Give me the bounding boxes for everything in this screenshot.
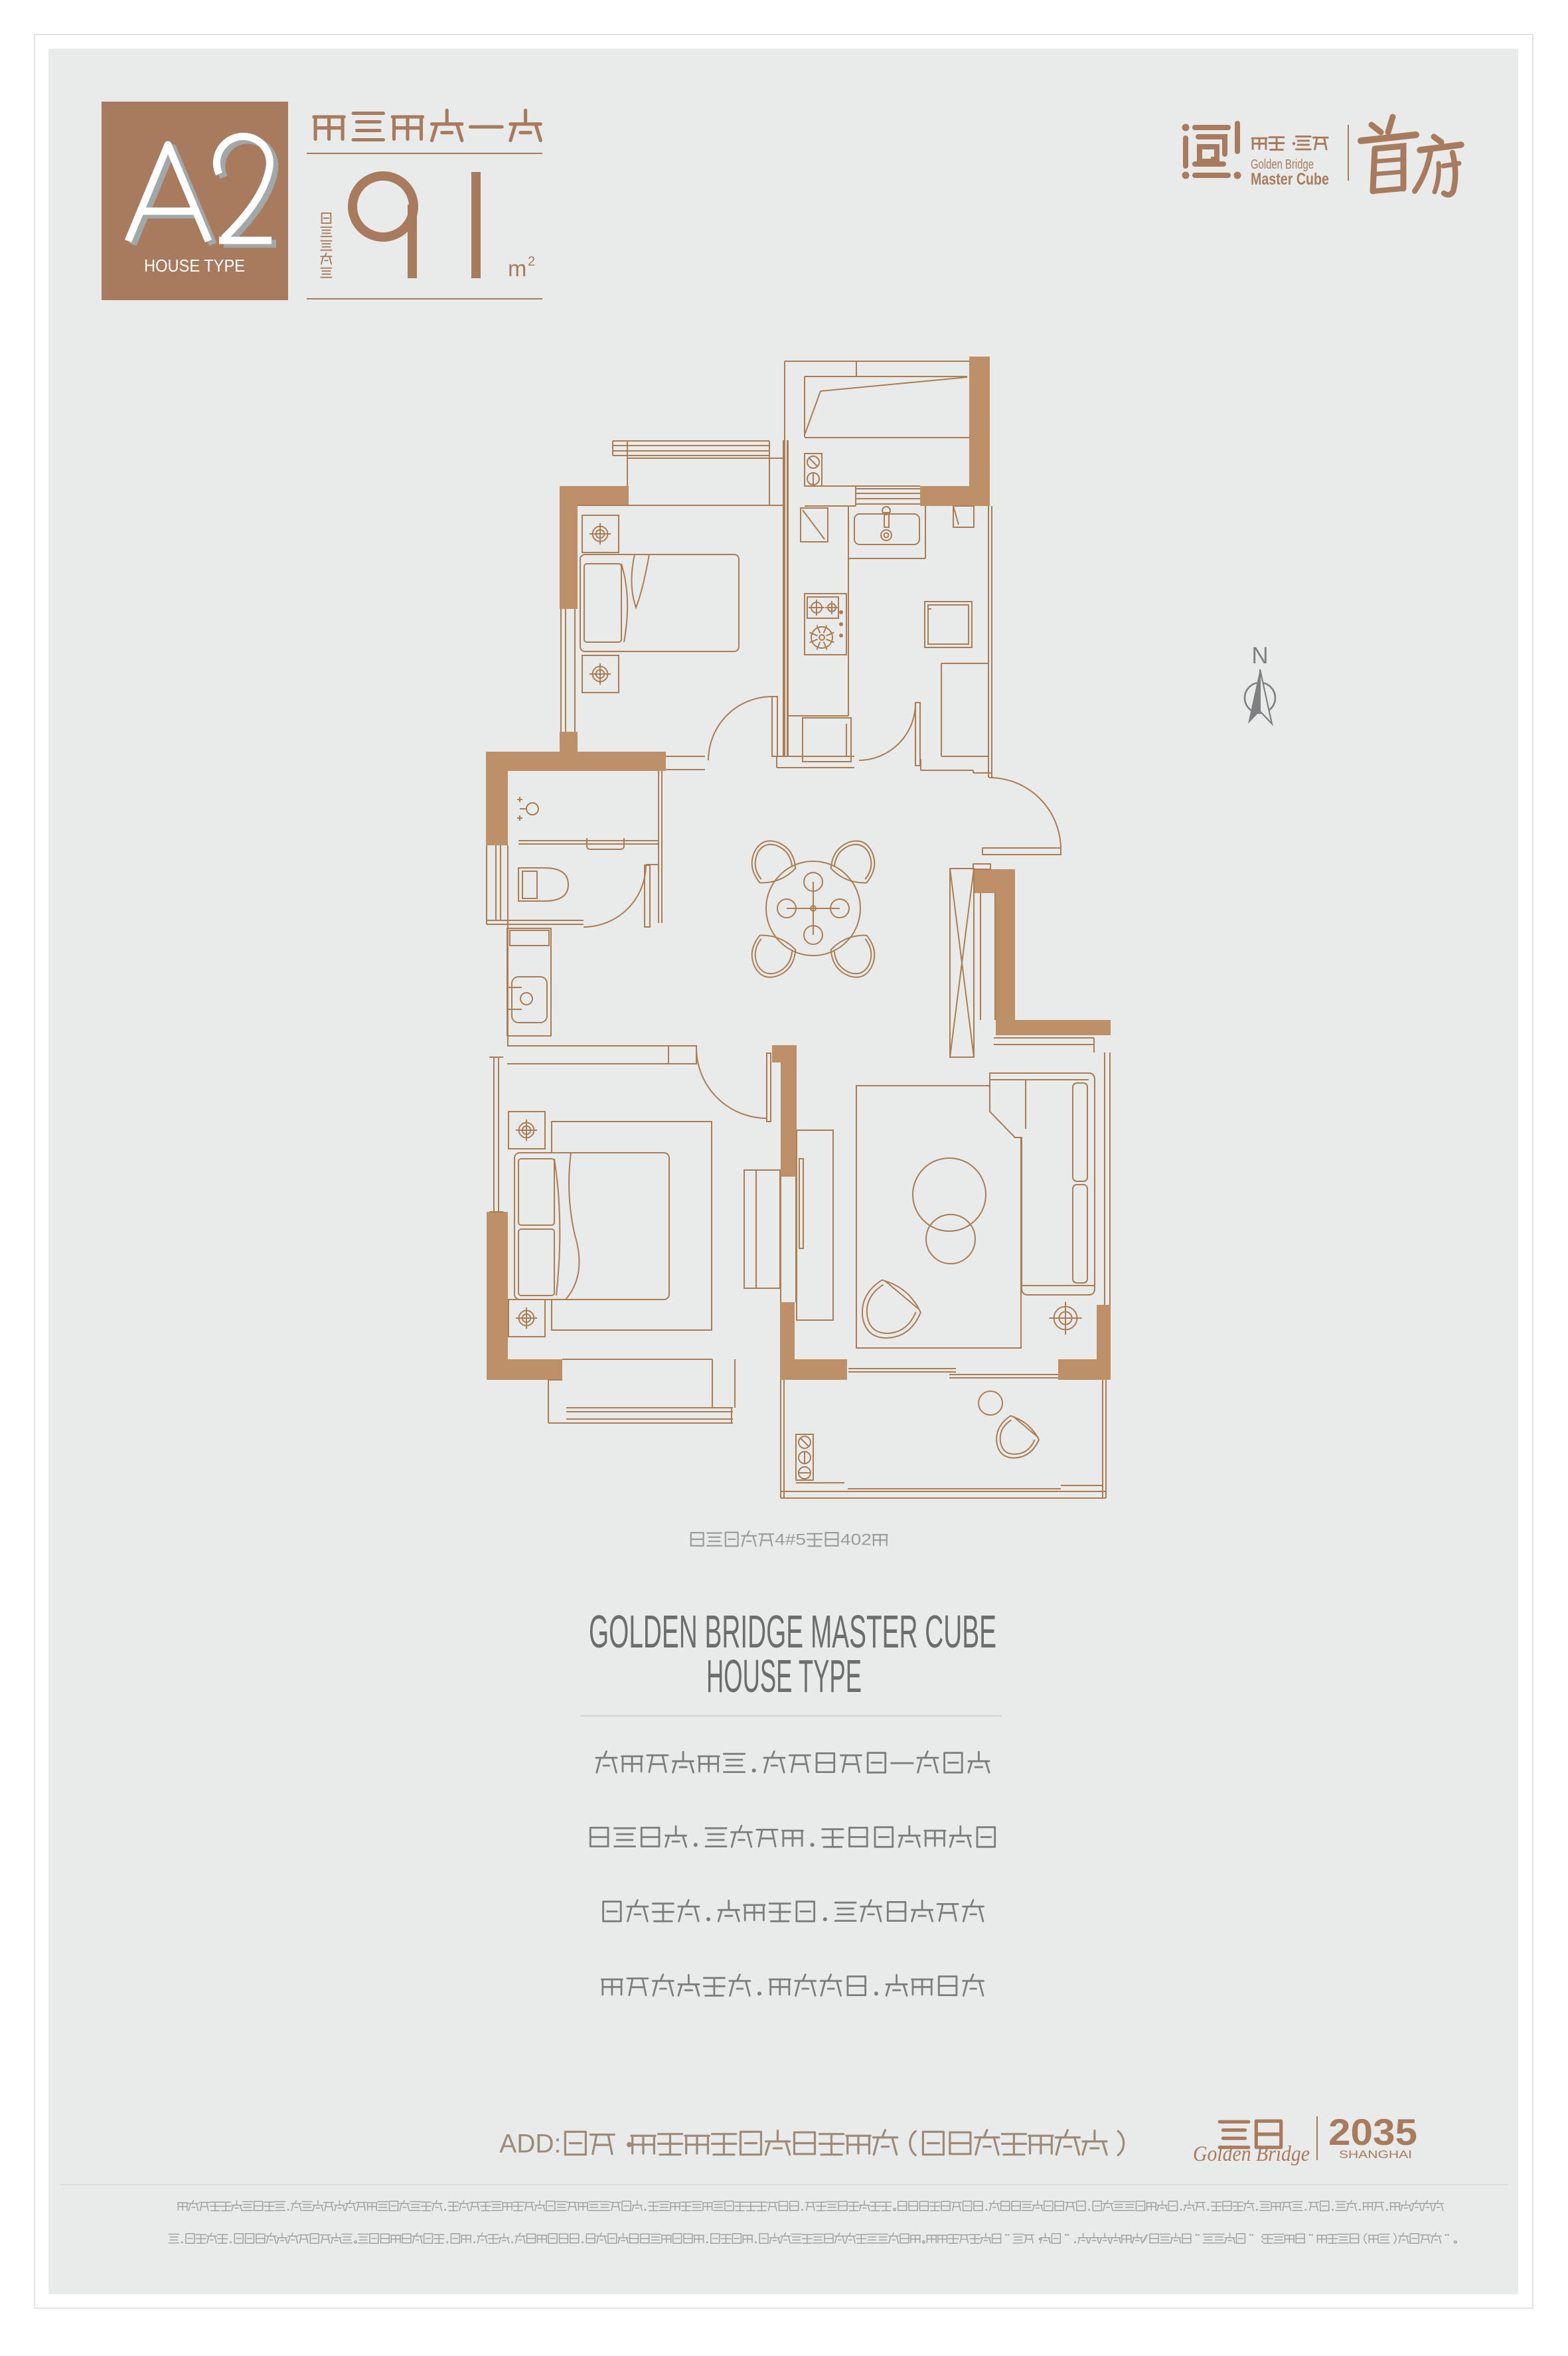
svg-text:Master Cube: Master Cube (1251, 170, 1329, 189)
svg-text:Golden Bridge: Golden Bridge (1193, 2142, 1310, 2166)
svg-text:4#5: 4#5 (775, 1531, 806, 1549)
svg-text:HOUSE TYPE: HOUSE TYPE (706, 1650, 862, 1702)
svg-text:m: m (508, 256, 526, 282)
svg-text:402: 402 (840, 1531, 872, 1549)
svg-text:2035: 2035 (1328, 2111, 1417, 2153)
svg-text:HOUSE TYPE: HOUSE TYPE (144, 256, 245, 276)
svg-text:/: / (1142, 2232, 1148, 2245)
svg-text:N: N (1251, 643, 1268, 669)
svg-text:ADD:: ADD: (499, 2129, 561, 2158)
svg-text:2: 2 (528, 254, 535, 269)
svg-text:SHANGHAI: SHANGHAI (1339, 2148, 1412, 2161)
